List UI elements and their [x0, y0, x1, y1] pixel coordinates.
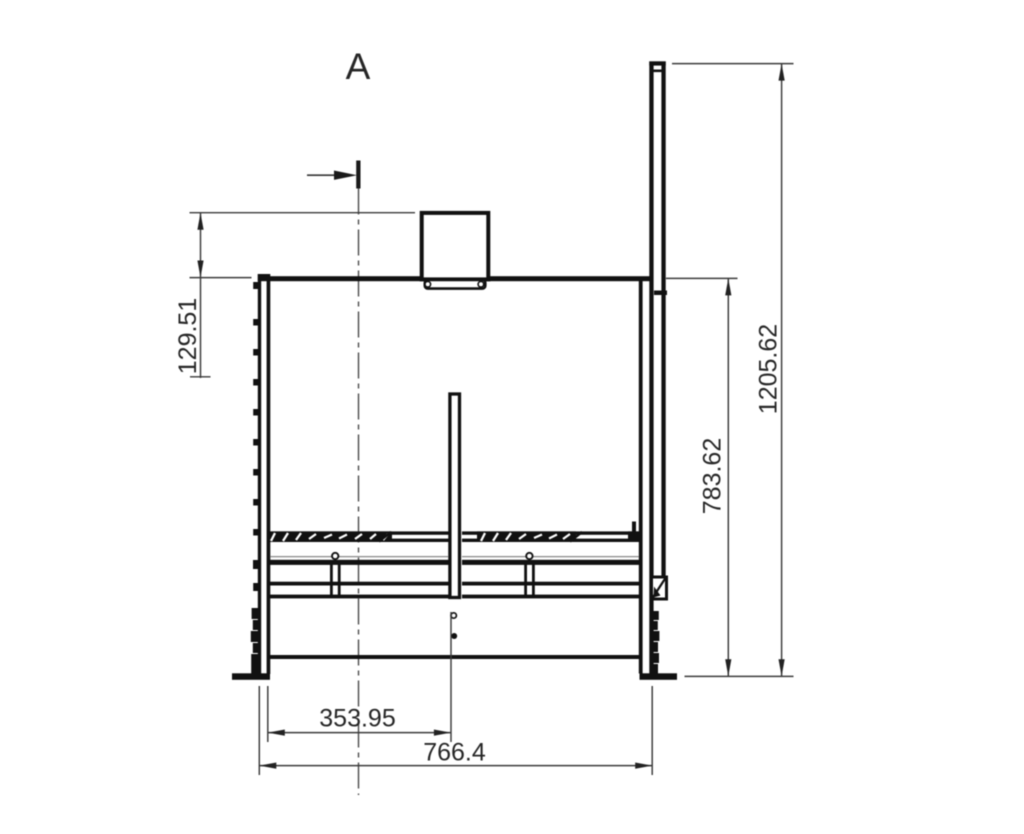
- svg-text:353.95: 353.95: [319, 705, 395, 733]
- svg-text:A: A: [346, 46, 371, 87]
- svg-text:783.62: 783.62: [699, 438, 727, 514]
- svg-text:1205.62: 1205.62: [755, 324, 783, 414]
- svg-text:129.51: 129.51: [174, 298, 202, 374]
- svg-text:766.4: 766.4: [423, 739, 486, 767]
